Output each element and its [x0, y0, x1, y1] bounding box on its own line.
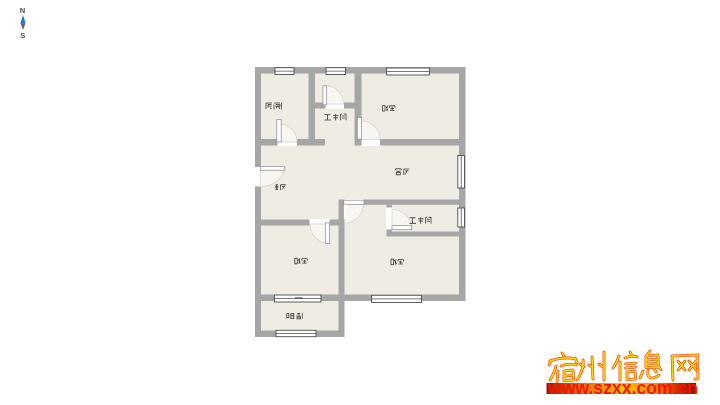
svg-text:N: N [20, 6, 25, 15]
svg-text:S: S [20, 31, 25, 40]
svg-text:www.szxx.com.cn: www.szxx.com.cn [547, 378, 698, 398]
